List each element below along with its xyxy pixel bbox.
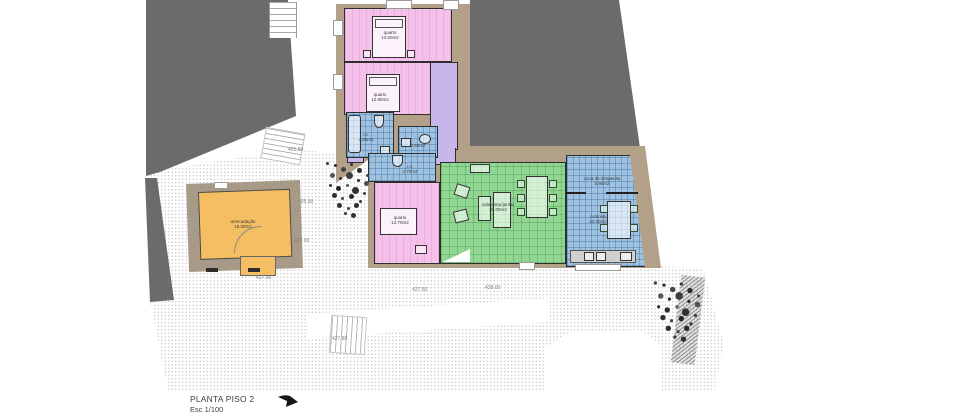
spot-elevation: 427.00 (294, 238, 309, 244)
toilet-icon (419, 134, 431, 144)
dresser-icon (415, 245, 427, 254)
sideboard-icon (470, 164, 490, 173)
chair-icon (549, 180, 557, 188)
kitchen-partition-wall (566, 192, 586, 194)
door-opening (519, 262, 535, 270)
title-block: PLANTA PISO 2 Esc 1/100 (190, 394, 254, 414)
exterior-stairs-south-icon (329, 315, 368, 355)
pillow-icon (375, 19, 403, 28)
threshold-mark (248, 268, 260, 272)
bed-icon (380, 208, 417, 235)
stove-icon (584, 252, 594, 261)
toilet-icon (374, 115, 384, 128)
chair-icon (630, 205, 638, 213)
chair-icon (600, 205, 608, 213)
chair-icon (517, 180, 525, 188)
nightstand-icon (407, 50, 415, 58)
neighbor-building-right (462, 0, 648, 152)
spot-elevation: 427.50 (256, 275, 271, 281)
sofa-icon (493, 192, 511, 228)
spot-elevation: 425.00 (298, 199, 313, 205)
nightstand-icon (363, 50, 371, 58)
annex-entry-stub (240, 256, 276, 276)
spot-elevation: 428.00 (485, 285, 500, 291)
sink-icon (380, 146, 390, 154)
door-opening (575, 264, 621, 271)
pillow-icon (369, 77, 397, 86)
spot-elevation: 427.80 (332, 336, 347, 342)
floor-plan-canvas: quarto 13.50m2 quarto 12.90m2 i.s. 4.90m… (0, 0, 960, 415)
coffee-table-icon (478, 196, 491, 221)
drawing-title: PLANTA PISO 2 (190, 394, 254, 404)
chair-icon (630, 224, 638, 232)
oven-icon (596, 252, 606, 261)
bathtub-icon (348, 115, 361, 153)
window-icon (333, 74, 343, 90)
toilet-icon (392, 155, 403, 167)
alley-stairs-icon (269, 2, 297, 38)
chair-icon (600, 224, 608, 232)
window-icon (214, 182, 228, 189)
chair-icon (517, 208, 525, 216)
kitchen-partition-wall (606, 192, 638, 194)
dining-table-icon (526, 176, 548, 218)
kitchen-sink-icon (620, 252, 632, 261)
sink-icon (401, 138, 411, 147)
window-icon (443, 0, 459, 10)
window-icon (386, 0, 412, 9)
north-arrow-icon (276, 393, 300, 409)
bed-icon (372, 16, 406, 58)
threshold-mark (206, 268, 218, 272)
chair-icon (549, 194, 557, 202)
kitchen-table-icon (607, 201, 631, 239)
chair-icon (517, 194, 525, 202)
spot-elevation: 421.50 (288, 147, 303, 153)
window-icon (333, 20, 343, 36)
drawing-scale: Esc 1/100 (190, 405, 254, 414)
bed-icon (366, 74, 400, 112)
chair-icon (549, 208, 557, 216)
alley-stairs-lower-icon (261, 127, 306, 165)
spot-elevation: 427.60 (412, 287, 427, 293)
